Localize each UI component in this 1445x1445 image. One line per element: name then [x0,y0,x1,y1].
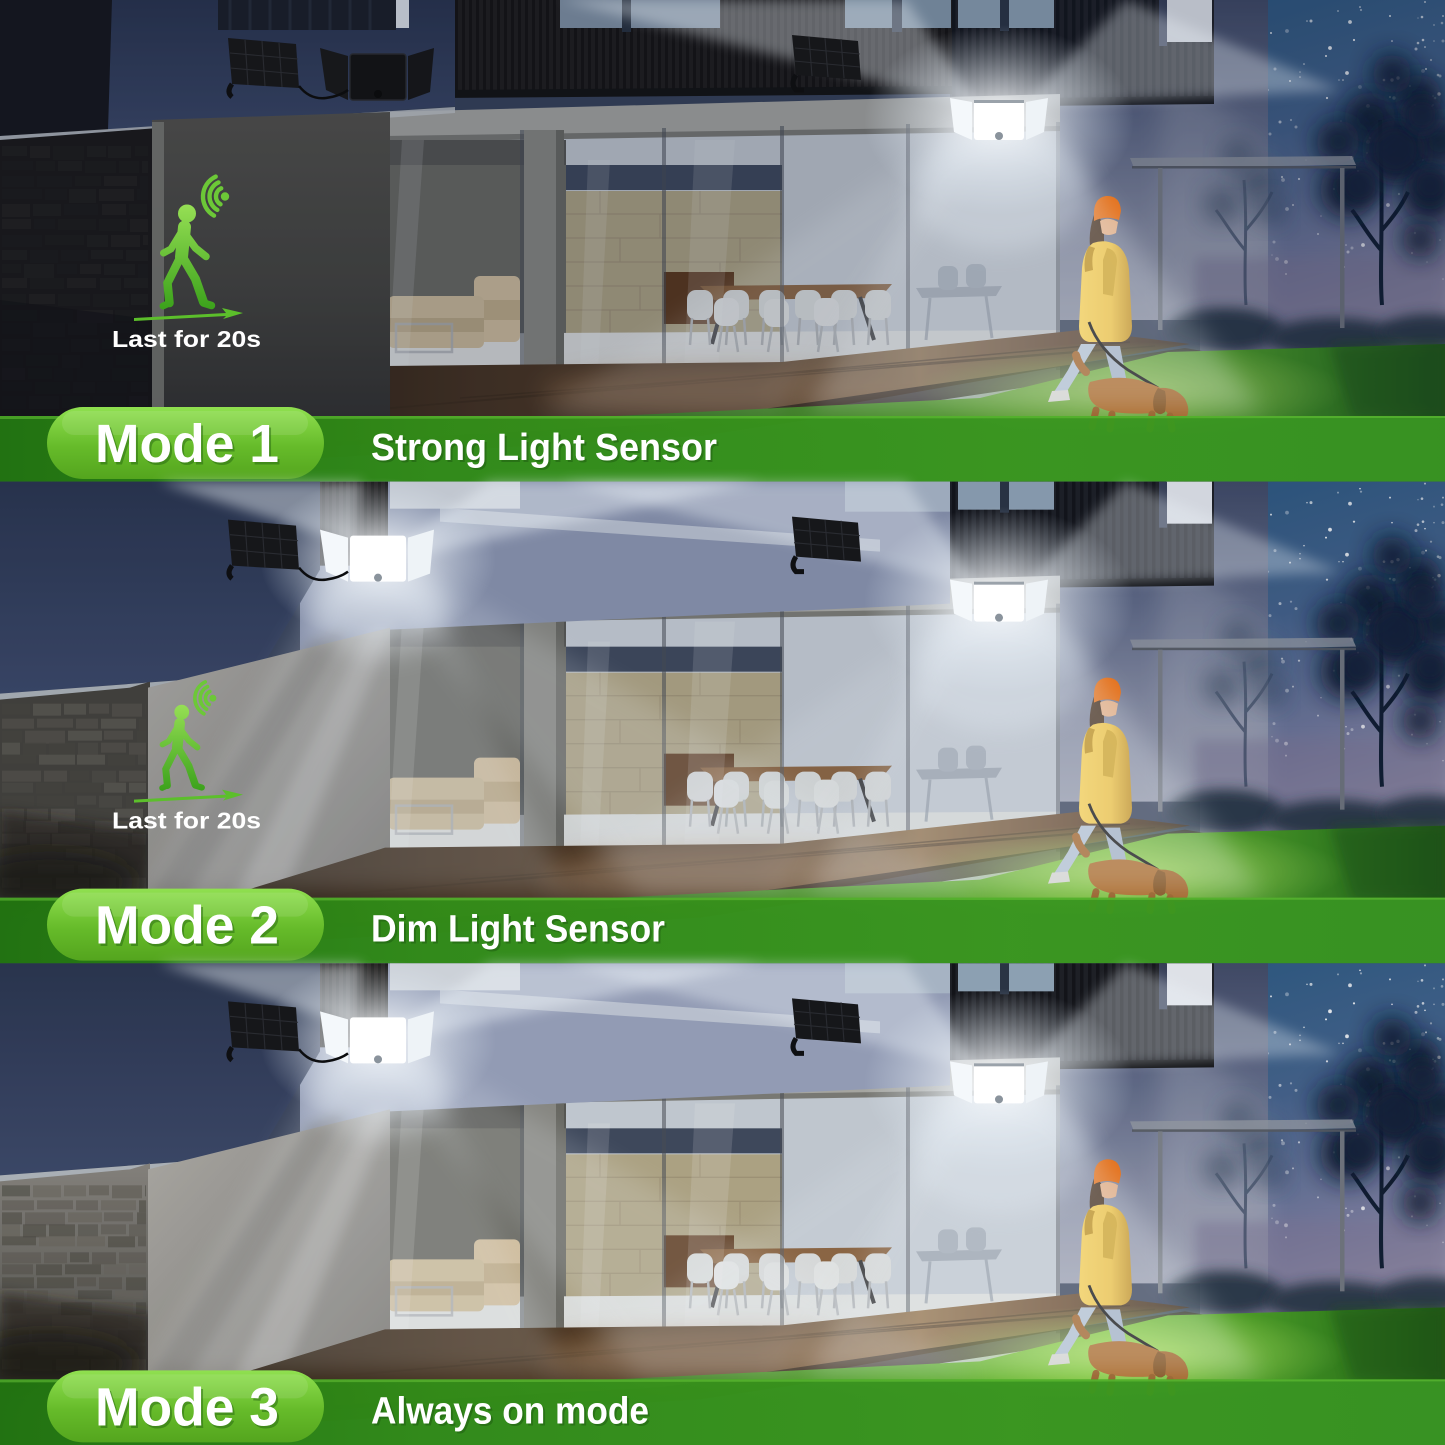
svg-text:Dim Light Sensor: Dim Light Sensor [371,909,665,951]
svg-text:Last for 20s: Last for 20s [112,808,261,834]
svg-text:Mode 1: Mode 1 [95,414,279,474]
svg-text:Always on mode: Always on mode [371,1390,649,1432]
svg-text:Last for 20s: Last for 20s [112,326,261,352]
svg-text:Strong Light Sensor: Strong Light Sensor [371,427,717,469]
svg-text:Mode 3: Mode 3 [95,1377,279,1437]
svg-text:Mode 2: Mode 2 [95,896,279,956]
